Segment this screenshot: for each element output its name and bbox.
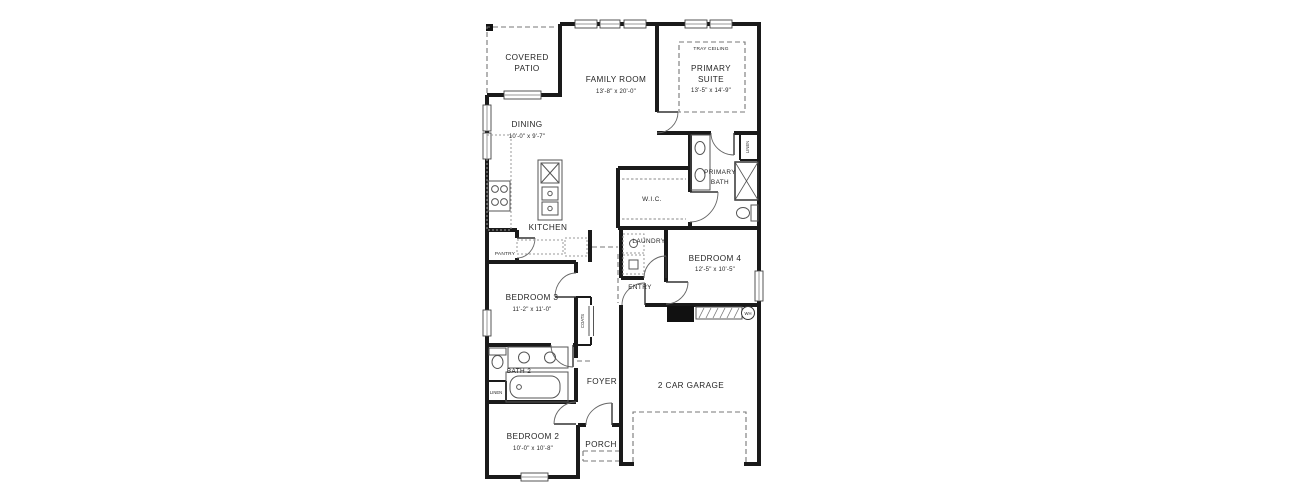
floor-plan: WH COVERED PATIO FAMILY ROOM 13'-8" x 20… bbox=[0, 0, 1307, 502]
room-primary-suite: TRAY CEILING PRIMARY SUITE 13'-5" x 14'-… bbox=[691, 46, 731, 94]
door-front bbox=[586, 403, 612, 425]
kitchen-island bbox=[538, 160, 562, 220]
kitchen-fixtures bbox=[487, 135, 587, 256]
room-label: BATH bbox=[711, 179, 729, 186]
room-covered-patio: COVERED PATIO bbox=[505, 53, 548, 73]
door-bath2 bbox=[551, 345, 573, 367]
room-dims: 13'-8" x 20'-0" bbox=[596, 89, 636, 95]
dryer-icon bbox=[623, 255, 644, 274]
garage-door-outline bbox=[633, 412, 746, 462]
window bbox=[483, 310, 491, 336]
shelf-hatch bbox=[696, 307, 742, 319]
door-bedroom4 bbox=[666, 282, 688, 304]
bathtub-icon bbox=[506, 372, 568, 402]
window bbox=[575, 20, 597, 28]
room-label: FAMILY ROOM bbox=[586, 75, 647, 84]
toilet-icon bbox=[737, 205, 759, 221]
entry-step bbox=[667, 306, 694, 322]
window bbox=[521, 473, 548, 481]
ceiling-label: TRAY CEILING bbox=[693, 46, 728, 52]
room-bedroom3: BEDROOM 3 11'-2" x 11'-0" bbox=[506, 293, 559, 313]
room-bedroom2: BEDROOM 2 10'-0" x 10'-8" bbox=[507, 432, 560, 452]
room-label: DINING bbox=[511, 120, 542, 129]
room-label-garage: 2 CAR GARAGE bbox=[658, 381, 724, 390]
room-family-room: FAMILY ROOM 13'-8" x 20'-0" bbox=[586, 75, 647, 95]
room-label-porch: PORCH bbox=[585, 440, 617, 449]
room-label-linen-primary: LINEN bbox=[745, 141, 750, 153]
room-dims: 10'-0" x 9'-7" bbox=[509, 134, 545, 140]
window bbox=[710, 20, 732, 28]
room-label: BEDROOM 3 bbox=[506, 293, 559, 302]
room-dims: 13'-5" x 14'-9" bbox=[691, 88, 731, 94]
door-bedroom2 bbox=[554, 402, 576, 424]
room-dining: DINING 10'-0" x 9'-7" bbox=[509, 120, 545, 140]
refrigerator-icon bbox=[565, 238, 587, 256]
window bbox=[600, 20, 620, 28]
toilet-icon bbox=[489, 348, 506, 369]
range-icon bbox=[542, 187, 558, 215]
door-wic bbox=[690, 192, 718, 222]
room-label: COVERED bbox=[505, 53, 548, 62]
shower-icon bbox=[735, 162, 758, 200]
sink-icon bbox=[541, 163, 559, 183]
room-label-wic: W.I.C. bbox=[642, 196, 662, 203]
water-heater-icon: WH bbox=[742, 307, 755, 320]
room-label: BEDROOM 2 bbox=[507, 432, 560, 441]
room-label-bath2: BATH 2 bbox=[507, 368, 531, 375]
kitchen-counter-bottom bbox=[517, 240, 563, 254]
room-label: PRIMARY bbox=[691, 64, 731, 73]
window bbox=[624, 20, 646, 28]
window bbox=[483, 105, 491, 131]
door-laundry bbox=[644, 256, 666, 278]
door-pantry bbox=[517, 238, 535, 258]
room-label-foyer: FOYER bbox=[587, 377, 617, 386]
room-label: SUITE bbox=[698, 75, 724, 84]
room-label-pantry: PANTRY bbox=[495, 251, 516, 257]
room-label-kitchen: KITCHEN bbox=[529, 223, 568, 232]
window bbox=[504, 91, 541, 99]
room-primary-bath: PRIMARY BATH bbox=[704, 169, 736, 186]
water-heater-label: WH bbox=[745, 311, 752, 316]
room-label: BEDROOM 4 bbox=[689, 254, 742, 263]
door-primary-bath bbox=[711, 133, 734, 155]
room-label-coats: COATS bbox=[580, 314, 585, 328]
door-primary-suite bbox=[657, 112, 678, 133]
room-dims: 12'-5" x 10'-5" bbox=[695, 267, 735, 273]
room-dims: 10'-0" x 10'-8" bbox=[513, 446, 553, 452]
room-label-laundry: LAUNDRY bbox=[632, 238, 666, 245]
double-sink-icon bbox=[508, 347, 568, 368]
door-coats-sliding bbox=[589, 306, 594, 336]
room-label: PATIO bbox=[514, 64, 539, 73]
room-label-linen2: LINEN bbox=[490, 390, 502, 395]
window bbox=[755, 271, 763, 301]
room-label: PRIMARY bbox=[704, 169, 736, 176]
porch-edge bbox=[583, 451, 619, 461]
floor-plan-svg: WH COVERED PATIO FAMILY ROOM 13'-8" x 20… bbox=[0, 0, 1307, 502]
window bbox=[685, 20, 707, 28]
room-dims: 11'-2" x 11'-0" bbox=[512, 307, 551, 313]
garage-fixtures: WH bbox=[667, 306, 755, 322]
room-label-entry: ENTRY bbox=[628, 284, 652, 291]
cooktop-icon bbox=[488, 181, 510, 211]
room-bedroom4: BEDROOM 4 12'-5" x 10'-5" bbox=[689, 254, 742, 273]
